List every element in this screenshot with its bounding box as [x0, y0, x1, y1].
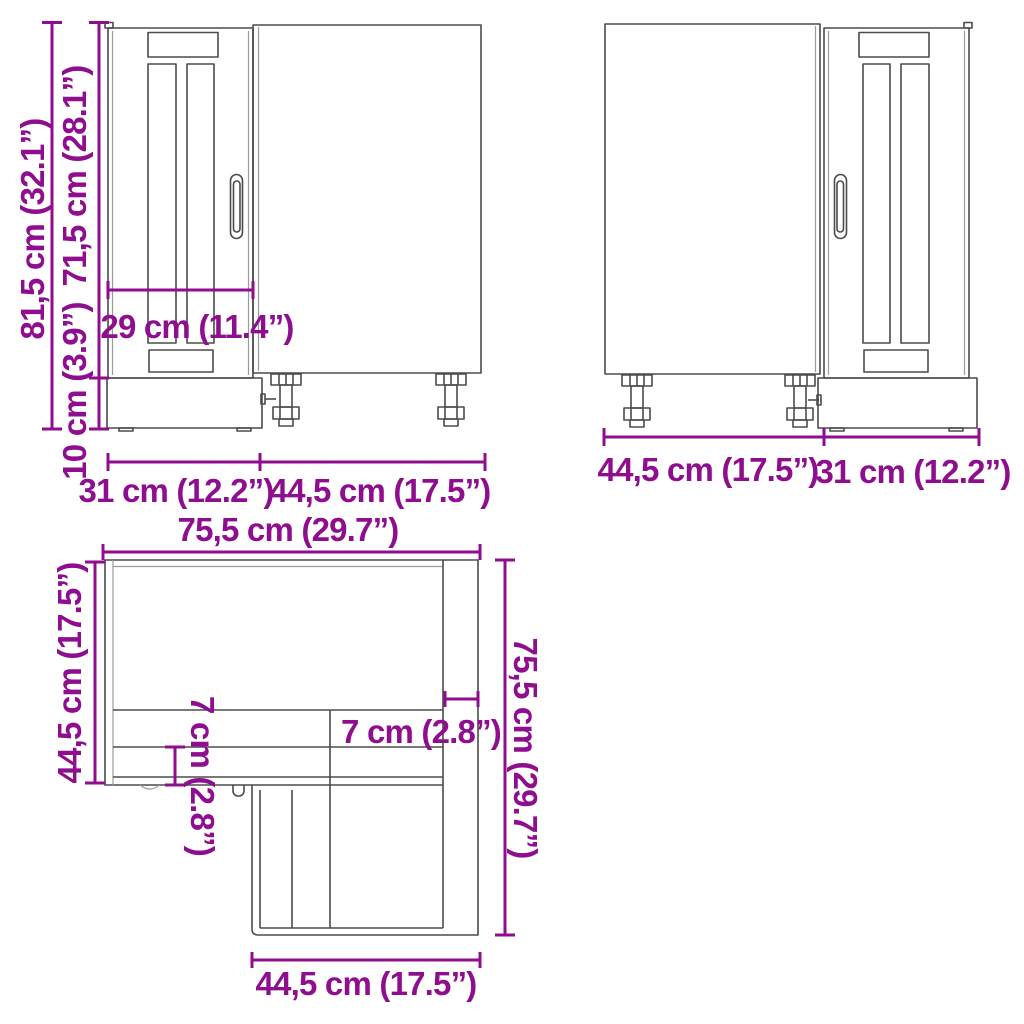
view-front-right: 44,5 cm (17.5”) 31 cm (12.2”) — [598, 23, 1011, 491]
dimension-lines — [85, 544, 515, 968]
leg-side-screw — [808, 395, 821, 405]
dim-label-total-height: 81,5 cm (32.1”) — [14, 119, 51, 340]
dim-label-top-width: 75,5 cm (29.7”) — [178, 511, 399, 548]
dim-label-plinth-height: 10 cm (3.9”) — [56, 302, 93, 480]
dim-line-side-offset-right — [445, 691, 478, 707]
dim-line-bottom-widths — [108, 453, 485, 471]
adjustable-legs — [261, 374, 466, 426]
dim-label-side-width: 44,5 cm (17.5”) — [270, 472, 491, 509]
dim-label-body-height: 71,5 cm (28.1”) — [56, 66, 93, 287]
diagram-canvas: 81,5 cm (32.1”) 71,5 cm (28.1”) 10 cm (3… — [0, 0, 1024, 1024]
dim-line-left-depth — [85, 562, 105, 783]
dim-label-door-inner-width: 29 cm (11.4”) — [100, 308, 293, 345]
dim-line-front-offset-left — [165, 747, 185, 785]
dimension-lines — [604, 428, 979, 446]
cabinet-dimension-diagram: 81,5 cm (32.1”) 71,5 cm (28.1”) 10 cm (3… — [0, 0, 1024, 1024]
dim-label-right-depth: 75,5 cm (29.7”) — [507, 638, 544, 859]
dim-label-side-offset-right: 7 cm (2.8”) — [341, 713, 501, 750]
view-top-plan: 75,5 cm (29.7”) 44,5 cm (17.5”) 7 cm (2.… — [51, 511, 544, 1002]
plinth — [107, 378, 262, 431]
plinth — [818, 378, 977, 431]
leg-side-screw — [261, 394, 276, 404]
dim-label-door-width: 31 cm (12.2”) — [815, 453, 1010, 490]
dim-label-bottom-width: 44,5 cm (17.5”) — [256, 965, 477, 1002]
dim-label-door-width: 31 cm (12.2”) — [78, 472, 273, 509]
dim-line-bottom-widths — [604, 428, 979, 446]
cabinet-carcass — [605, 24, 820, 374]
dim-label-left-depth: 44,5 cm (17.5”) — [51, 563, 88, 784]
cabinet-door — [824, 23, 972, 379]
hinge-clip — [233, 785, 244, 796]
adjustable-legs — [622, 375, 821, 427]
dim-label-side-width: 44,5 cm (17.5”) — [598, 451, 819, 488]
dim-line-door-inner-width — [108, 281, 253, 299]
view-front-left: 81,5 cm (32.1”) 71,5 cm (28.1”) 10 cm (3… — [14, 23, 490, 510]
dim-label-front-offset-left: 7 cm (2.8”) — [184, 696, 221, 856]
